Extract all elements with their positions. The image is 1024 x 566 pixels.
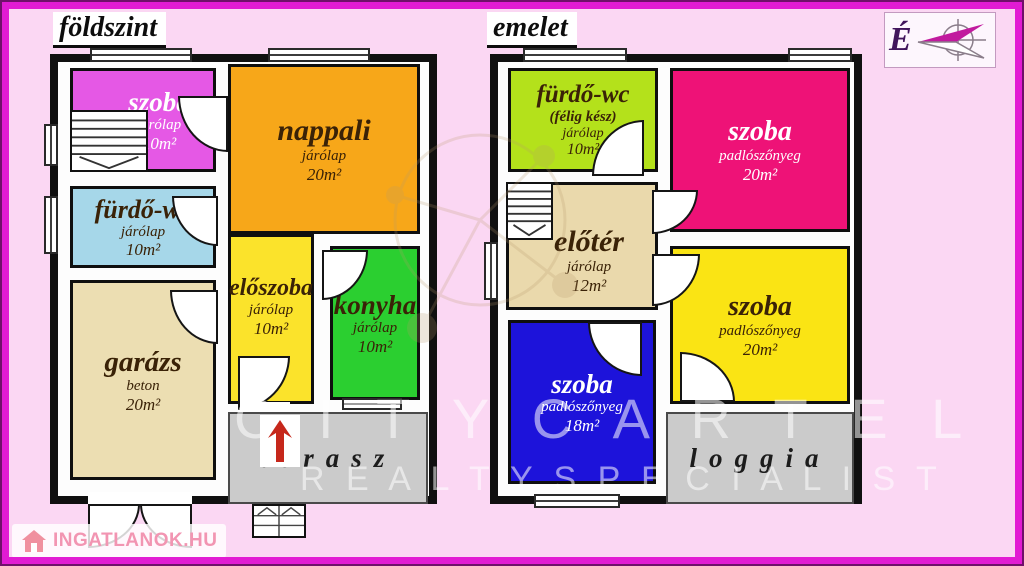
room-upper-szoba-top: szoba padlószőnyeg 20m² — [670, 68, 850, 232]
window — [44, 196, 58, 254]
ground-floor-title: földszint — [53, 12, 166, 48]
room-floor-type: padlószőnyeg — [541, 399, 623, 416]
room-area: 20m² — [126, 395, 160, 414]
north-compass: É — [884, 12, 996, 68]
window — [788, 48, 852, 62]
room-name: nappali — [277, 114, 370, 148]
window — [342, 398, 402, 410]
room-name: fürdő-wc — [536, 81, 629, 109]
room-area: 12m² — [572, 276, 606, 295]
room-floor-type: járólap — [567, 259, 611, 276]
room-floor-type: padlószőnyeg — [719, 148, 801, 165]
room-area: 20m² — [743, 165, 777, 184]
area-loggia: loggia — [666, 412, 854, 504]
outdoor-steps — [252, 504, 306, 538]
room-name: szoba — [728, 116, 792, 147]
window — [44, 124, 58, 166]
room-name: szoba — [728, 291, 792, 322]
window — [90, 48, 192, 62]
room-area: 10m² — [126, 240, 160, 259]
room-name: konyha — [334, 290, 417, 320]
room-area: 10m² — [358, 337, 392, 356]
room-area: 18m² — [565, 416, 599, 435]
north-label: É — [889, 23, 912, 57]
room-area: 20m² — [743, 340, 777, 359]
house-icon — [21, 529, 47, 553]
room-name: garázs — [104, 346, 181, 378]
room-status: (félig kész) — [549, 109, 616, 126]
room-ground-nappali: nappali járólap 20m² — [228, 64, 420, 234]
upper-floor-title: emelet — [487, 12, 577, 48]
room-name: szoba — [551, 369, 613, 399]
room-area: 10m² — [254, 319, 288, 338]
stairs-icon — [506, 182, 553, 240]
window — [484, 242, 498, 300]
room-floor-type: járólap — [562, 126, 603, 142]
room-floor-type: padlószőnyeg — [719, 323, 801, 340]
room-floor-type: járólap — [249, 302, 293, 319]
stairs-icon — [70, 110, 148, 172]
compass-arrow-icon — [914, 17, 990, 63]
room-floor-type: járólap — [121, 224, 165, 241]
area-terasz: terasz — [228, 412, 428, 504]
room-area: 20m² — [307, 165, 341, 184]
room-floor-type: beton — [126, 378, 159, 395]
entrance-arrow-icon — [260, 415, 300, 467]
window — [268, 48, 370, 62]
room-name: előtér — [554, 225, 624, 259]
window — [534, 494, 620, 508]
room-floor-type: járólap — [353, 320, 397, 337]
room-name: előszoba — [229, 275, 313, 302]
window — [523, 48, 627, 62]
room-floor-type: járólap — [302, 148, 346, 165]
area-name: loggia — [689, 443, 830, 474]
ingatlanok-logo: INGATLANOK.HU — [12, 524, 226, 558]
wall-opening — [88, 492, 192, 504]
logo-text: INGATLANOK.HU — [53, 530, 217, 552]
